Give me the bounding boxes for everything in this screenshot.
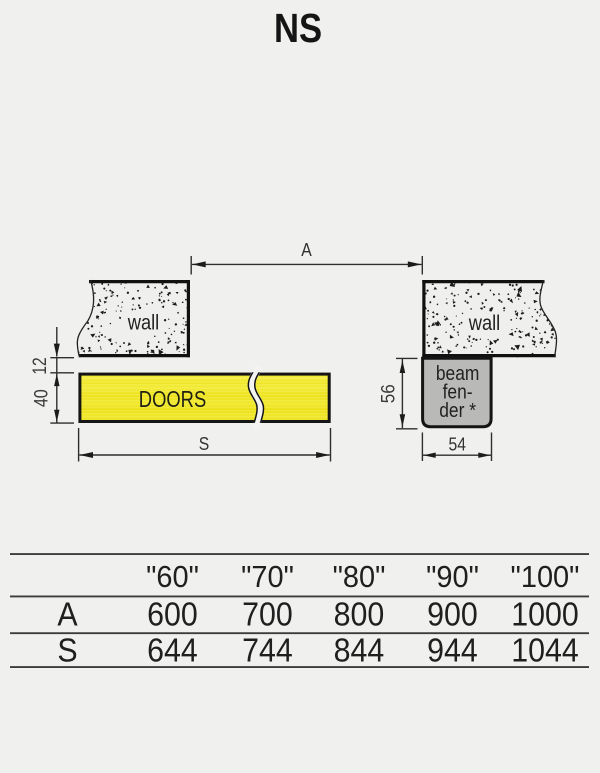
svg-text:600: 600 — [147, 595, 198, 632]
svg-text:800: 800 — [334, 595, 385, 632]
svg-text:12: 12 — [29, 357, 51, 374]
svg-text:40: 40 — [30, 389, 52, 407]
svg-text:1044: 1044 — [511, 631, 579, 668]
svg-text:56: 56 — [378, 384, 399, 403]
svg-text:644: 644 — [147, 631, 198, 668]
svg-text:wall: wall — [127, 311, 159, 334]
svg-text:A: A — [57, 595, 78, 632]
svg-text:844: 844 — [334, 631, 385, 668]
svg-text:NS: NS — [274, 6, 322, 51]
svg-text:54: 54 — [449, 433, 467, 455]
svg-text:"90": "90" — [426, 560, 479, 594]
svg-text:S: S — [199, 433, 209, 455]
svg-text:744: 744 — [242, 631, 293, 668]
svg-text:944: 944 — [427, 631, 478, 668]
svg-text:wall: wall — [468, 312, 500, 335]
svg-text:"80": "80" — [333, 560, 386, 594]
svg-text:1000: 1000 — [511, 595, 579, 632]
svg-text:"100": "100" — [511, 560, 580, 594]
svg-text:"70": "70" — [241, 560, 294, 594]
svg-text:der *: der * — [439, 400, 476, 423]
svg-text:900: 900 — [427, 595, 478, 632]
svg-text:A: A — [301, 239, 312, 261]
svg-text:S: S — [57, 631, 77, 668]
svg-text:DOORS: DOORS — [139, 387, 206, 412]
svg-text:"60": "60" — [146, 560, 199, 594]
svg-text:700: 700 — [242, 595, 293, 632]
